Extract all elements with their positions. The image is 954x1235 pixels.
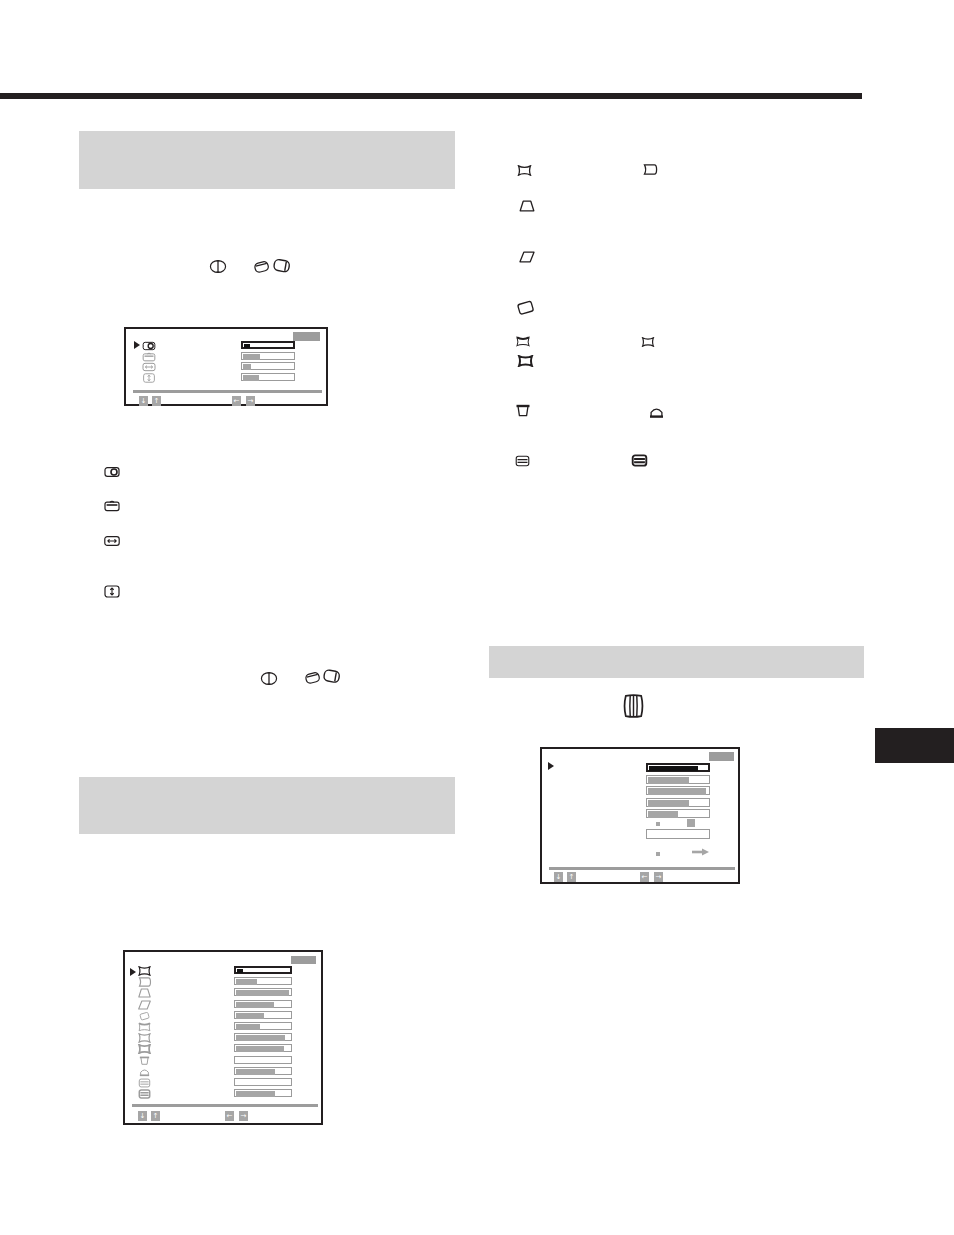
osd-slider-fill	[648, 800, 689, 807]
control-knob-front-icon	[209, 259, 227, 274]
osd-slider	[234, 1033, 292, 1041]
osd-slider	[234, 966, 292, 974]
osd-slider	[241, 373, 295, 381]
down-key-icon: ↓	[138, 1111, 147, 1121]
osd-separator	[549, 867, 735, 870]
parallelogram-menu-icon	[135, 1000, 154, 1010]
dome-menu-icon	[135, 1067, 154, 1077]
osd-slider-fill	[236, 1024, 260, 1030]
osd-slider	[234, 1022, 292, 1030]
osd-slider-fill	[243, 364, 251, 370]
h-center-icon	[104, 466, 120, 478]
h-size-menu-icon	[139, 362, 159, 372]
trapezoid-icon	[519, 200, 535, 212]
control-knob-tilt-left-icon	[303, 670, 322, 685]
osd-slider-fill	[236, 1046, 284, 1052]
osd-slider	[646, 775, 710, 784]
v-size-icon	[104, 585, 120, 598]
control-knob-tilt-left-icon	[252, 259, 271, 274]
pincushion-bold-icon	[517, 355, 534, 367]
osd-geometry-menu: ↓↑←→	[123, 950, 323, 1125]
osd-title-box	[709, 752, 734, 761]
top-pincushion-icon	[515, 336, 531, 347]
down-key-icon: ↓	[554, 872, 563, 882]
osd-slider	[241, 362, 295, 370]
osd-slider	[234, 977, 292, 985]
section-heading-bar-2	[79, 777, 455, 834]
v-center-menu-icon	[139, 352, 159, 362]
up-key-icon: ↑	[567, 872, 576, 882]
osd-slider-fill	[236, 979, 257, 985]
left-key-icon: ←	[225, 1111, 234, 1121]
pin-top-menu-icon	[135, 1022, 154, 1032]
linearity-bold-icon	[631, 454, 648, 467]
right-key-icon: →	[239, 1111, 248, 1121]
osd-slider	[234, 1067, 292, 1075]
v-center-icon	[104, 500, 120, 512]
osd-slider	[234, 1044, 292, 1052]
option-dot	[656, 822, 660, 826]
down-key-icon: ↓	[139, 396, 148, 406]
osd-slider-fill	[236, 1013, 264, 1019]
selection-pointer-icon	[548, 762, 554, 770]
osd-slider-fill	[648, 811, 678, 818]
section-heading-bar-1	[79, 131, 455, 189]
osd-slider	[234, 1056, 292, 1064]
osd-slider-fill	[236, 1069, 275, 1075]
osd-slider-fill	[244, 344, 250, 348]
pin-balance-icon	[642, 164, 658, 175]
option-arrow-right	[692, 841, 709, 849]
osd-slider	[241, 341, 295, 349]
osd-slider	[646, 786, 710, 795]
top-rule	[0, 93, 862, 99]
osd-slider-fill	[236, 990, 289, 996]
osd-slider-fill	[649, 766, 698, 771]
osd-slider-fill	[236, 1035, 285, 1041]
right-key-icon: →	[654, 872, 663, 882]
option-empty-field	[646, 829, 710, 839]
osd-slider	[646, 763, 710, 772]
pincushion-small-icon	[640, 337, 656, 347]
osd-title-box	[293, 332, 320, 341]
lines-box-bold-menu-icon	[135, 1089, 154, 1099]
linearity-icon	[515, 455, 530, 467]
trapezoid-menu-icon	[135, 988, 154, 998]
up-key-icon: ↑	[151, 1111, 160, 1121]
osd-slider-fill	[236, 1091, 275, 1097]
pincushion-icon	[517, 165, 532, 176]
left-key-icon: ←	[232, 396, 241, 406]
pin-balance-menu-icon	[135, 977, 154, 987]
osd-slider	[646, 809, 710, 818]
osd-slider-fill	[648, 788, 706, 795]
right-key-icon: →	[246, 396, 255, 406]
pin-menu-icon	[135, 966, 154, 976]
h-center-menu-icon	[139, 341, 159, 351]
top-keystone-icon	[515, 404, 531, 418]
rotated-rect-menu-icon	[135, 1011, 154, 1021]
lines-box-menu-icon	[135, 1078, 154, 1088]
osd-slider-fill	[243, 375, 259, 381]
osd-slider-fill	[236, 1002, 274, 1008]
pin-bold-menu-icon	[135, 1044, 154, 1054]
osd-separator	[132, 1104, 318, 1107]
osd-slider	[234, 1000, 292, 1008]
osd-slider	[234, 988, 292, 996]
option-selected-square	[687, 819, 695, 827]
page-edge-tab	[875, 728, 954, 763]
h-size-icon	[104, 535, 120, 547]
osd-title-box	[291, 956, 316, 964]
osd-slider	[234, 1011, 292, 1019]
pin-menu-icon	[135, 1033, 154, 1043]
osd-slider	[234, 1089, 292, 1097]
osd-separator	[133, 390, 322, 393]
control-knob-tilt-right-icon	[272, 257, 292, 274]
osd-slider-fill	[243, 354, 260, 360]
osd-slider-fill	[237, 969, 243, 973]
osd-slider-fill	[648, 777, 689, 784]
parallelogram-icon	[519, 251, 535, 263]
osd-option-menu: ↓↑←→	[540, 747, 740, 884]
osd-slider	[234, 1078, 292, 1086]
cup-menu-icon	[135, 1056, 154, 1066]
control-knob-front-icon	[260, 671, 278, 686]
rotation-icon	[516, 299, 535, 316]
left-key-icon: ←	[640, 872, 649, 882]
manual-page: ↓↑←→↓↑←→↓↑←→	[0, 0, 954, 1235]
section-heading-bar-3	[489, 646, 864, 678]
osd-slider	[241, 352, 295, 360]
control-knob-tilt-right-icon	[322, 667, 342, 685]
v-size-menu-icon	[139, 373, 159, 383]
barrel-linearity-icon	[620, 692, 647, 720]
up-key-icon: ↑	[152, 396, 161, 406]
bottom-keystone-icon	[648, 405, 665, 419]
osd-center-size-menu: ↓↑←→	[124, 327, 328, 406]
option-dot	[656, 852, 660, 856]
osd-slider	[646, 798, 710, 807]
